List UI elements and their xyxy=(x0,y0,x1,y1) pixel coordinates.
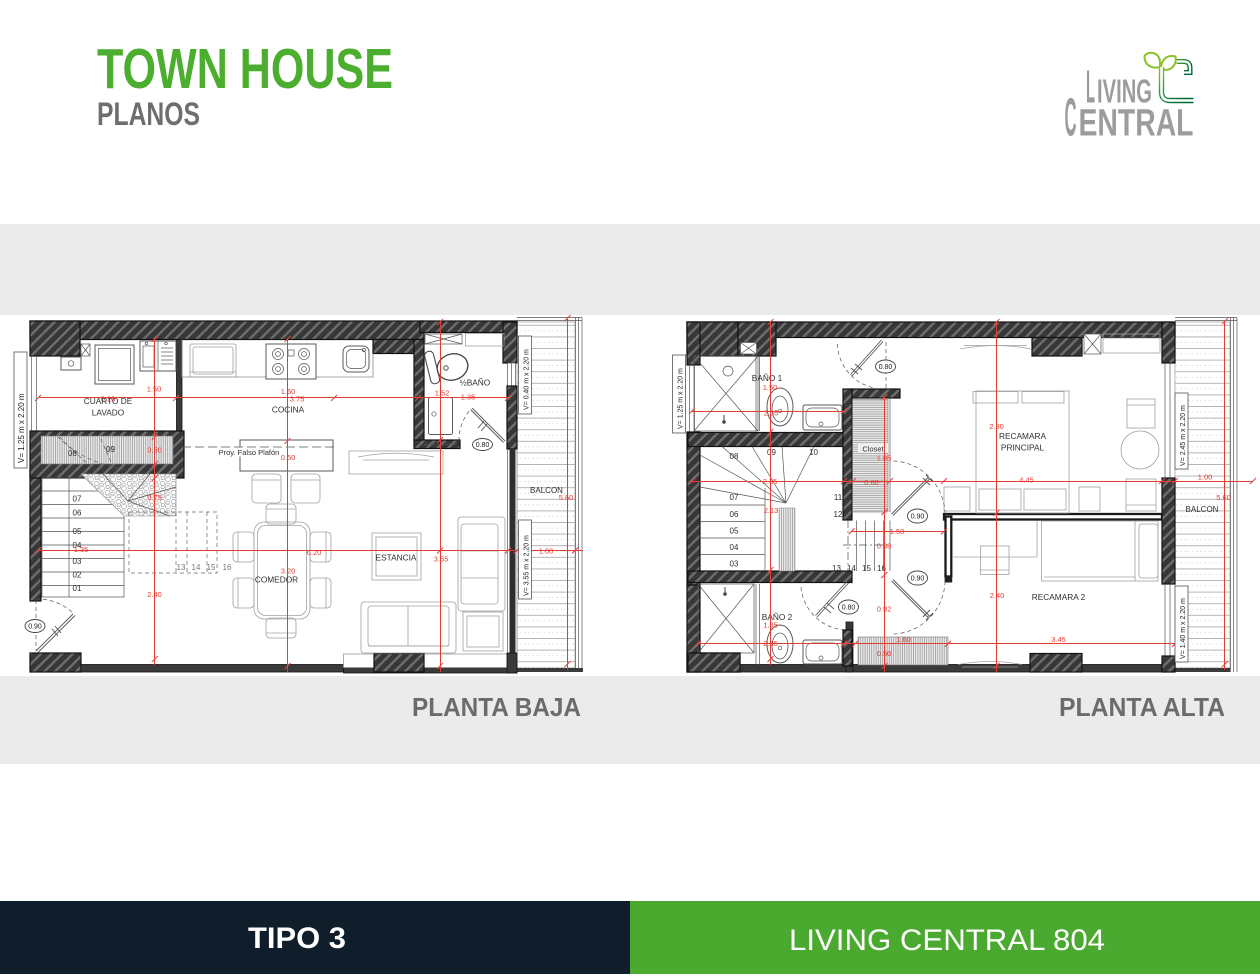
svg-text:PLANTA BAJA: PLANTA BAJA xyxy=(412,692,581,722)
svg-text:13: 13 xyxy=(832,564,841,573)
svg-text:3.75: 3.75 xyxy=(290,395,305,404)
svg-text:13: 13 xyxy=(177,563,186,572)
svg-text:09: 09 xyxy=(767,448,776,457)
svg-text:0.75: 0.75 xyxy=(147,493,162,502)
svg-text:COCINA: COCINA xyxy=(272,405,305,415)
svg-text:08: 08 xyxy=(730,452,739,461)
svg-text:1.00: 1.00 xyxy=(539,547,554,556)
svg-text:Proy. Falso Plafón: Proy. Falso Plafón xyxy=(219,448,280,457)
svg-text:03: 03 xyxy=(730,560,739,569)
svg-text:2.40: 2.40 xyxy=(990,591,1005,600)
svg-text:V= 3.55 m x 2.20 m: V= 3.55 m x 2.20 m xyxy=(524,535,531,596)
svg-text:0.92: 0.92 xyxy=(877,605,892,614)
svg-text:1.60: 1.60 xyxy=(896,635,911,644)
svg-text:0.50: 0.50 xyxy=(877,649,892,658)
svg-text:0.90: 0.90 xyxy=(911,576,925,583)
svg-text:ESTANCIA: ESTANCIA xyxy=(376,553,417,563)
svg-text:10: 10 xyxy=(809,448,818,457)
svg-text:06: 06 xyxy=(73,509,82,518)
svg-text:COMEDOR: COMEDOR xyxy=(255,575,298,585)
svg-text:07: 07 xyxy=(73,495,82,504)
svg-text:BAÑO 1: BAÑO 1 xyxy=(752,373,783,383)
svg-text:0.50: 0.50 xyxy=(147,446,162,455)
svg-text:1.50: 1.50 xyxy=(763,383,778,392)
svg-text:1.35: 1.35 xyxy=(763,621,778,630)
svg-text:2.13: 2.13 xyxy=(764,506,779,515)
svg-text:0.80: 0.80 xyxy=(476,442,490,449)
svg-text:3.45: 3.45 xyxy=(1051,635,1066,644)
svg-text:2.35: 2.35 xyxy=(764,409,779,418)
svg-text:07: 07 xyxy=(730,493,739,502)
svg-text:RECAMARA: RECAMARA xyxy=(999,431,1046,441)
svg-text:15: 15 xyxy=(862,564,871,573)
svg-text:1.85: 1.85 xyxy=(877,454,892,463)
svg-text:03: 03 xyxy=(73,557,82,566)
svg-text:08: 08 xyxy=(68,449,77,458)
svg-text:CUARTO DE: CUARTO DE xyxy=(84,396,133,406)
svg-text:LAVADO: LAVADO xyxy=(92,408,125,418)
svg-text:5.60: 5.60 xyxy=(1216,493,1231,502)
svg-text:LIVING CENTRAL 804: LIVING CENTRAL 804 xyxy=(789,924,1105,957)
svg-text:0.88: 0.88 xyxy=(877,542,892,551)
svg-text:TIPO 3: TIPO 3 xyxy=(248,922,346,955)
svg-text:1.52: 1.52 xyxy=(435,389,450,398)
svg-text:16: 16 xyxy=(223,563,232,572)
svg-text:0.90: 0.90 xyxy=(28,624,42,631)
svg-text:Closet: Closet xyxy=(862,445,884,454)
svg-text:05: 05 xyxy=(730,527,739,536)
svg-text:0.60: 0.60 xyxy=(864,478,879,487)
svg-text:2.35: 2.35 xyxy=(763,477,778,486)
svg-text:V= 2.45 m x 2.20 m: V= 2.45 m x 2.20 m xyxy=(1180,405,1187,466)
svg-text:15: 15 xyxy=(207,563,216,572)
svg-text:V= 0.40 m x 2.20 m: V= 0.40 m x 2.20 m xyxy=(524,349,531,410)
svg-text:1.35: 1.35 xyxy=(461,393,476,402)
svg-text:PRINCIPAL: PRINCIPAL xyxy=(1001,443,1045,453)
svg-text:2.80: 2.80 xyxy=(989,422,1004,431)
svg-text:2.40: 2.40 xyxy=(147,590,162,599)
svg-text:1.50: 1.50 xyxy=(890,527,905,536)
svg-text:09: 09 xyxy=(106,445,115,454)
svg-text:0.90: 0.90 xyxy=(911,514,925,521)
svg-text:14: 14 xyxy=(192,563,201,572)
svg-text:01: 01 xyxy=(73,584,82,593)
svg-text:½BAÑO: ½BAÑO xyxy=(460,378,491,388)
svg-text:14: 14 xyxy=(847,564,856,573)
svg-text:V= 1.25 m x 2.20 m: V= 1.25 m x 2.20 m xyxy=(17,393,26,463)
svg-text:16: 16 xyxy=(877,564,886,573)
svg-text:0.50: 0.50 xyxy=(281,453,296,462)
svg-text:0.80: 0.80 xyxy=(879,364,893,371)
svg-text:V= 1.40 m x 2.20 m: V= 1.40 m x 2.20 m xyxy=(1180,598,1187,659)
svg-text:1.35: 1.35 xyxy=(74,545,89,554)
svg-text:1.50: 1.50 xyxy=(147,385,162,394)
svg-text:2.35: 2.35 xyxy=(763,639,778,648)
svg-text:04: 04 xyxy=(730,543,739,552)
svg-text:V= 1.25 m x 2.20 m: V= 1.25 m x 2.20 m xyxy=(678,368,685,429)
svg-text:1.00: 1.00 xyxy=(1198,473,1213,482)
svg-text:3.55: 3.55 xyxy=(434,555,449,564)
svg-text:PLANTA ALTA: PLANTA ALTA xyxy=(1059,692,1225,722)
svg-text:BALCON: BALCON xyxy=(1186,505,1219,514)
svg-text:6.20: 6.20 xyxy=(307,548,322,557)
svg-text:RECAMARA 2: RECAMARA 2 xyxy=(1032,592,1086,602)
svg-text:4.45: 4.45 xyxy=(1019,476,1034,485)
svg-text:06: 06 xyxy=(730,510,739,519)
svg-text:02: 02 xyxy=(73,571,82,580)
svg-text:12: 12 xyxy=(834,510,843,519)
svg-text:11: 11 xyxy=(834,493,843,502)
svg-text:BALCON: BALCON xyxy=(530,486,563,495)
svg-text:0.80: 0.80 xyxy=(842,605,856,612)
svg-text:05: 05 xyxy=(73,527,82,536)
